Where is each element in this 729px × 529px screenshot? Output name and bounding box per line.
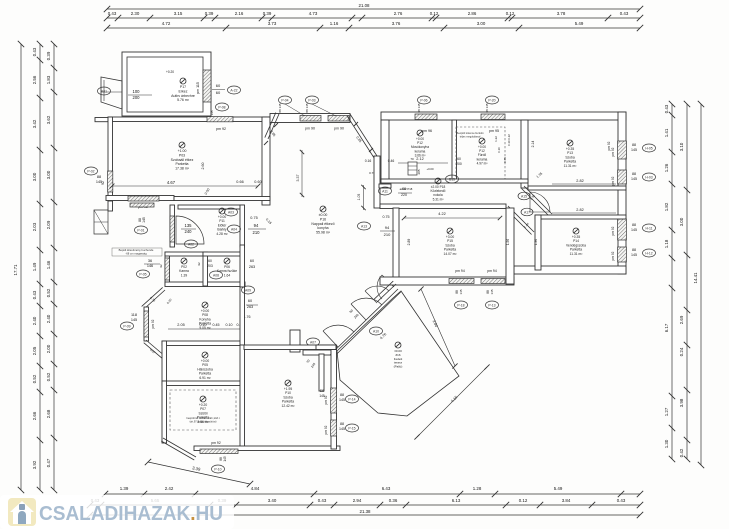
svg-text:3.37: 3.37 [296, 175, 300, 182]
svg-text:pm 94: pm 94 [455, 269, 465, 273]
svg-text:3.00: 3.00 [46, 170, 51, 179]
svg-text:H-11: H-11 [645, 226, 652, 230]
svg-text:pm 95: pm 95 [489, 129, 499, 133]
svg-text:0.75: 0.75 [383, 215, 390, 219]
svg-text:2.14: 2.14 [531, 141, 535, 148]
svg-text:0.12: 0.12 [519, 498, 528, 503]
svg-text:0.47: 0.47 [46, 458, 51, 467]
svg-text:P-10: P-10 [214, 467, 221, 471]
svg-text:1.26: 1.26 [664, 163, 669, 172]
svg-text:0.24: 0.24 [679, 347, 684, 356]
svg-text:H-03: H-03 [645, 175, 652, 179]
svg-text:P17: P17 [180, 85, 186, 89]
svg-text:2.94: 2.94 [353, 498, 362, 503]
svg-text:3.92: 3.92 [32, 460, 37, 469]
svg-text:2.09: 2.09 [46, 220, 51, 229]
svg-text:5.31 m²: 5.31 m² [433, 197, 444, 201]
svg-text:2.03: 2.03 [32, 222, 37, 231]
svg-text:0.12: 0.12 [506, 11, 515, 16]
svg-text:118: 118 [131, 313, 137, 317]
svg-text:P-02: P-02 [87, 169, 94, 173]
svg-text:A01: A01 [101, 89, 107, 93]
svg-text:Bepült létesítmény buchende: Bepült létesítmény buchende [119, 248, 154, 252]
svg-text:70: 70 [410, 157, 414, 161]
svg-text:3.78: 3.78 [557, 11, 566, 16]
svg-text:2.89: 2.89 [407, 239, 411, 246]
svg-text:P-15: P-15 [348, 426, 355, 430]
svg-text:3.76: 3.76 [392, 21, 401, 26]
svg-text:P-14: P-14 [348, 397, 355, 401]
svg-text:1.46: 1.46 [46, 260, 51, 269]
svg-text:B15: B15 [449, 177, 455, 181]
svg-text:2.82: 2.82 [576, 208, 583, 212]
svg-text:36: 36 [148, 259, 152, 263]
svg-text:2.60: 2.60 [201, 163, 205, 170]
svg-text:0.39: 0.39 [205, 11, 214, 16]
svg-text:263: 263 [247, 305, 253, 309]
svg-text:0.75: 0.75 [250, 216, 257, 220]
svg-text:200: 200 [133, 95, 141, 100]
svg-text:0.43: 0.43 [32, 47, 37, 56]
svg-text:3.00: 3.00 [477, 21, 486, 26]
svg-text:94: 94 [254, 223, 259, 228]
svg-text:240: 240 [185, 229, 193, 234]
svg-text:60: 60 [457, 157, 461, 161]
svg-text:55.98 m²: 55.98 m² [316, 231, 331, 235]
svg-text:12.42 m²: 12.42 m² [281, 404, 295, 408]
svg-text:teljes megoldással: teljes megoldással [460, 136, 481, 139]
svg-text:0.52: 0.52 [46, 372, 51, 381]
svg-text:14.41: 14.41 [693, 272, 698, 284]
svg-text:0.39: 0.39 [46, 51, 51, 60]
svg-text:6.91 m²: 6.91 m² [199, 376, 211, 380]
svg-text:P03: P03 [179, 153, 185, 157]
svg-text:210: 210 [253, 230, 261, 235]
svg-text:6.43: 6.43 [382, 486, 391, 491]
svg-text:(Palló): (Palló) [394, 365, 403, 369]
svg-text:1.18: 1.18 [664, 239, 669, 248]
svg-text:1.16: 1.16 [330, 21, 339, 26]
svg-text:A-22: A-22 [230, 88, 237, 92]
svg-text:pm 92: pm 92 [611, 251, 615, 260]
svg-text:146: 146 [147, 264, 153, 268]
svg-text:P-06: P-06 [420, 98, 427, 102]
svg-text:P-03: P-03 [308, 98, 315, 102]
svg-text:200: 200 [456, 162, 462, 166]
svg-text:5.76 m²: 5.76 m² [177, 98, 190, 102]
svg-text:92: 92 [197, 262, 201, 266]
svg-text:4.28 m²: 4.28 m² [216, 232, 228, 236]
svg-text:4.73: 4.73 [309, 11, 318, 16]
svg-text:205: 205 [417, 169, 421, 174]
svg-text:60: 60 [250, 259, 254, 263]
svg-text:Parketta: Parketta [175, 162, 188, 166]
svg-text:2.66: 2.66 [32, 411, 37, 420]
svg-text:3.73: 3.73 [268, 21, 277, 26]
svg-text:203: 203 [207, 264, 213, 268]
svg-text:H-12: H-12 [645, 251, 652, 255]
svg-text:A08: A08 [213, 273, 219, 277]
svg-text:Nappali étkező: Nappali étkező [311, 222, 334, 226]
svg-text:0.12: 0.12 [430, 11, 439, 16]
svg-text:135: 135 [185, 223, 193, 228]
svg-text:P-05: P-05 [139, 272, 146, 276]
svg-text:88: 88 [632, 143, 636, 147]
svg-text:tört.97. mája töbszőröző: tört.97. mája töbszőröző [190, 421, 217, 424]
svg-text:H-05: H-05 [645, 146, 652, 150]
svg-text:0.43: 0.43 [620, 11, 629, 16]
svg-text:pm 92: pm 92 [324, 425, 328, 434]
svg-text:145: 145 [223, 456, 227, 462]
svg-text:4.22: 4.22 [438, 212, 445, 216]
svg-text:0.16: 0.16 [365, 159, 372, 163]
svg-text:4.72: 4.72 [162, 21, 171, 26]
svg-text:14.07 m²: 14.07 m² [443, 252, 457, 256]
svg-text:145: 145 [339, 427, 345, 431]
svg-text:A15: A15 [521, 194, 527, 198]
svg-text:3.10: 3.10 [679, 142, 684, 151]
svg-text:21.38: 21.38 [360, 509, 372, 514]
svg-text:A07: A07 [310, 340, 316, 344]
svg-text:0.43: 0.43 [108, 11, 117, 16]
svg-text:88 145: 88 145 [305, 103, 309, 113]
svg-text:1.96: 1.96 [534, 239, 538, 245]
svg-text:pm 92: pm 92 [611, 147, 615, 156]
svg-text:145: 145 [319, 394, 325, 398]
svg-text:145: 145 [631, 177, 637, 181]
svg-text:pm 92: pm 92 [611, 226, 615, 235]
svg-text:A03: A03 [228, 210, 234, 214]
svg-text:pm 90: pm 90 [334, 127, 344, 131]
svg-text:pm 92: pm 92 [607, 141, 611, 150]
svg-text:6.17: 6.17 [664, 323, 669, 332]
svg-text:2.40: 2.40 [46, 314, 51, 323]
svg-text:0.52: 0.52 [32, 374, 37, 383]
svg-text:145: 145 [459, 289, 463, 294]
svg-text:11.31 m²: 11.31 m² [564, 164, 578, 168]
svg-text:+0.20: +0.20 [166, 70, 174, 74]
svg-text:2.86: 2.86 [468, 11, 477, 16]
svg-text:3.40: 3.40 [268, 498, 277, 503]
svg-text:2.82: 2.82 [576, 179, 583, 183]
svg-text:0.75: 0.75 [503, 157, 507, 163]
svg-text:145: 145 [96, 180, 102, 184]
svg-text:E8: E8 [320, 389, 324, 393]
svg-text:145: 145 [339, 398, 345, 402]
svg-text:1.64: 1.64 [224, 273, 231, 277]
svg-text:6.13: 6.13 [452, 498, 461, 503]
svg-text:0.52: 0.52 [46, 288, 51, 297]
svg-text:P-09: P-09 [123, 324, 130, 328]
svg-text:5.49: 5.49 [554, 486, 563, 491]
svg-text:220: 220 [401, 193, 407, 197]
svg-text:210: 210 [384, 232, 391, 237]
svg-text:1.96: 1.96 [506, 239, 510, 245]
svg-text:pm 94: pm 94 [487, 269, 497, 273]
svg-text:1.30: 1.30 [664, 439, 669, 448]
svg-text:+1.00: +1.00 [178, 149, 187, 153]
svg-text:CSALADIHAZAK.HU: CSALADIHAZAK.HU [39, 502, 223, 525]
svg-text:0.36: 0.36 [389, 498, 398, 503]
svg-text:P-08: P-08 [218, 105, 225, 109]
svg-text:145: 145 [490, 289, 494, 294]
svg-text:0.46: 0.46 [388, 159, 395, 163]
svg-text:2.69: 2.69 [679, 315, 684, 324]
svg-text:60: 60 [208, 259, 212, 263]
svg-text:1.27: 1.27 [664, 407, 669, 416]
svg-text:2.30: 2.30 [131, 11, 140, 16]
svg-text:1.82: 1.82 [664, 202, 669, 211]
svg-text:pm 90: pm 90 [305, 127, 315, 131]
svg-text:0.10 0.22: 0.10 0.22 [507, 134, 511, 146]
svg-text:92: 92 [159, 264, 163, 268]
svg-text:A10: A10 [373, 329, 379, 333]
svg-text:17.38 m²: 17.38 m² [175, 167, 190, 171]
svg-text:1.28: 1.28 [473, 486, 482, 491]
svg-text:P-13: P-13 [488, 303, 495, 307]
svg-text:P-20: P-20 [488, 98, 495, 102]
svg-text:3.00: 3.00 [32, 172, 37, 181]
svg-text:0.66: 0.66 [236, 180, 243, 184]
svg-text:1.05: 1.05 [357, 194, 361, 201]
svg-text:88: 88 [340, 422, 344, 426]
svg-text:88: 88 [632, 248, 636, 252]
svg-text:A09: A09 [245, 288, 251, 292]
svg-text:3.15: 3.15 [174, 11, 183, 16]
svg-text:pm 115: pm 115 [196, 82, 200, 94]
svg-text:88: 88 [97, 175, 101, 179]
svg-text:3.42: 3.42 [32, 119, 37, 128]
svg-text:3.98: 3.98 [679, 398, 684, 407]
svg-text:pm 96: pm 96 [422, 129, 432, 133]
svg-text:0.60: 0.60 [254, 180, 261, 184]
svg-text:1.83: 1.83 [46, 75, 51, 84]
svg-text:4.97 m²: 4.97 m² [477, 161, 488, 165]
svg-text:Autbv árbevhre: Autbv árbevhre [171, 94, 195, 98]
svg-text:pm 92: pm 92 [151, 319, 155, 328]
svg-text:0.42: 0.42 [679, 448, 684, 457]
svg-text:1.41: 1.41 [664, 128, 669, 137]
svg-text:A04: A04 [231, 227, 237, 231]
svg-text:Szobaáll étkez: Szobaáll étkez [171, 158, 194, 162]
svg-text:1.39: 1.39 [120, 486, 129, 491]
svg-text:145: 145 [131, 318, 137, 322]
svg-text:88: 88 [340, 393, 344, 397]
svg-text:2.68: 2.68 [46, 409, 51, 418]
svg-text:+0.00: +0.00 [426, 167, 434, 171]
svg-text:0.45: 0.45 [213, 323, 220, 327]
svg-text:145: 145 [631, 253, 637, 257]
svg-text:2.05: 2.05 [32, 346, 37, 355]
svg-text:0.43: 0.43 [318, 498, 327, 503]
svg-text:A17: A17 [524, 210, 530, 214]
svg-text:5.49: 5.49 [575, 21, 584, 26]
svg-text:-68 cm magasság: -68 cm magasság [125, 252, 147, 256]
svg-text:21.08: 21.08 [359, 3, 371, 8]
svg-text:88 145: 88 145 [485, 103, 489, 113]
svg-text:A02: A02 [188, 242, 194, 246]
svg-text:60: 60 [216, 83, 221, 88]
svg-text:0.39: 0.39 [263, 11, 272, 16]
svg-text:4.84: 4.84 [251, 486, 260, 491]
svg-text:1.22: 1.22 [494, 136, 498, 142]
svg-text:P-04: P-04 [281, 98, 288, 102]
svg-text:0.10: 0.10 [200, 323, 207, 327]
svg-text:60: 60 [216, 90, 221, 95]
svg-text:145: 145 [631, 148, 637, 152]
svg-text:2.42: 2.42 [165, 486, 174, 491]
svg-text:2.00: 2.00 [46, 344, 51, 353]
svg-text:2.16: 2.16 [235, 11, 244, 16]
svg-text:1.39: 1.39 [181, 273, 188, 277]
svg-text:0.43: 0.43 [32, 290, 37, 299]
svg-text:a2.22 P18: a2.22 P18 [400, 187, 413, 191]
svg-text:145: 145 [142, 217, 146, 223]
svg-text:konyha: konyha [317, 226, 328, 230]
svg-text:0.10: 0.10 [226, 323, 233, 327]
svg-text:P16: P16 [320, 217, 326, 221]
svg-text:88 145: 88 145 [417, 103, 421, 113]
svg-text:2.05: 2.05 [177, 323, 184, 327]
svg-text:17.71: 17.71 [13, 264, 18, 276]
svg-text:263: 263 [249, 265, 255, 269]
svg-text:3.00: 3.00 [679, 217, 684, 226]
svg-text:pm 92: pm 92 [216, 127, 226, 131]
svg-text:145: 145 [631, 228, 637, 232]
svg-text:0.43: 0.43 [617, 498, 626, 503]
svg-text:pm 92: pm 92 [211, 441, 221, 445]
svg-text:11.31 m²: 11.31 m² [570, 252, 584, 256]
svg-text:88: 88 [632, 172, 636, 176]
svg-text:A11: A11 [382, 189, 388, 193]
svg-text:0.43: 0.43 [664, 104, 669, 113]
svg-text:P-01: P-01 [137, 228, 144, 232]
svg-text:±0.00: ±0.00 [319, 213, 328, 217]
svg-text:4.67: 4.67 [167, 180, 176, 185]
svg-text:2.76: 2.76 [394, 11, 403, 16]
svg-text:100: 100 [133, 89, 141, 94]
svg-text:3.84: 3.84 [562, 498, 571, 503]
svg-text:60: 60 [248, 299, 252, 303]
svg-text:A13: A13 [361, 224, 367, 228]
svg-text:88 145: 88 145 [278, 103, 282, 113]
svg-text:3.62: 3.62 [46, 115, 51, 124]
svg-text:2.40: 2.40 [32, 316, 37, 325]
svg-text:0.10: 0.10 [497, 147, 501, 153]
svg-text:94: 94 [385, 225, 390, 230]
svg-text:1.49: 1.49 [32, 262, 37, 271]
svg-text:P-18: P-18 [457, 303, 464, 307]
svg-text:2.56: 2.56 [32, 75, 37, 84]
svg-text:88: 88 [632, 223, 636, 227]
svg-text:Erkez: Erkez [179, 89, 188, 93]
svg-text:2.12: 2.12 [416, 157, 423, 161]
